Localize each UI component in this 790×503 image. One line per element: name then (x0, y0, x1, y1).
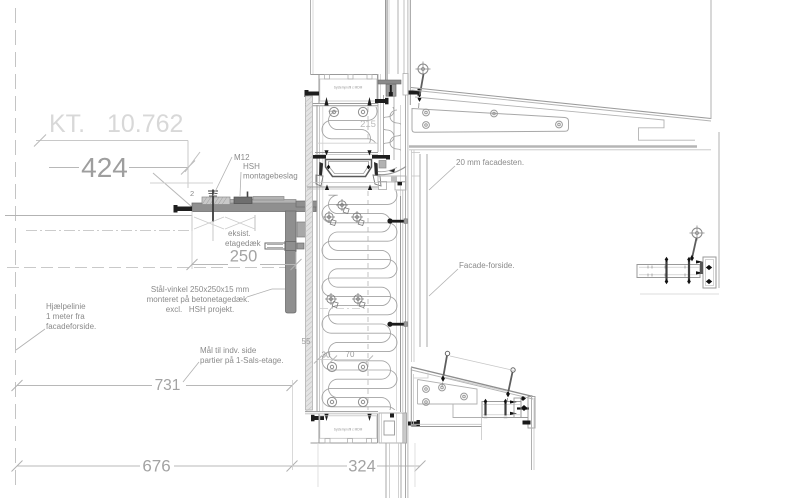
svg-text:facadeforside.: facadeforside. (46, 322, 96, 331)
svg-text:731: 731 (155, 377, 181, 394)
svg-text:Facade-forside.: Facade-forside. (459, 261, 515, 270)
svg-text:424: 424 (81, 152, 128, 183)
svg-text:676: 676 (142, 457, 170, 476)
svg-text:Hjælpelinie: Hjælpelinie (46, 302, 86, 311)
svg-text:Systemprofil c MDM: Systemprofil c MDM (334, 428, 363, 432)
svg-text:montagebeslag: montagebeslag (243, 172, 298, 181)
svg-text:250: 250 (230, 248, 258, 266)
svg-text:20 mm facadesten.: 20 mm facadesten. (456, 158, 524, 167)
svg-text:10.762: 10.762 (107, 110, 183, 138)
svg-text:KT.: KT. (49, 110, 85, 138)
svg-text:excl. HSH projekt.: excl. HSH projekt. (166, 305, 234, 314)
svg-text:30: 30 (322, 351, 331, 360)
svg-text:70: 70 (346, 350, 355, 359)
svg-text:HSH: HSH (243, 162, 260, 171)
svg-text:monteret på betonetagedæk.: monteret på betonetagedæk. (147, 295, 250, 304)
svg-text:215: 215 (360, 119, 376, 130)
svg-text:M12: M12 (234, 153, 250, 162)
svg-text:Mål til indv. side: Mål til indv. side (200, 346, 257, 355)
svg-text:2: 2 (190, 189, 194, 198)
svg-text:1 meter fra: 1 meter fra (46, 312, 85, 321)
svg-text:Stål-vinkel 250x250x15 mm: Stål-vinkel 250x250x15 mm (151, 285, 250, 294)
svg-text:324: 324 (348, 458, 376, 476)
svg-text:eksist.: eksist. (228, 229, 251, 238)
svg-text:partier på 1-Sals-etage.: partier på 1-Sals-etage. (200, 356, 284, 365)
svg-text:Systemprofil c MDM: Systemprofil c MDM (334, 86, 363, 90)
svg-text:55: 55 (302, 337, 311, 346)
